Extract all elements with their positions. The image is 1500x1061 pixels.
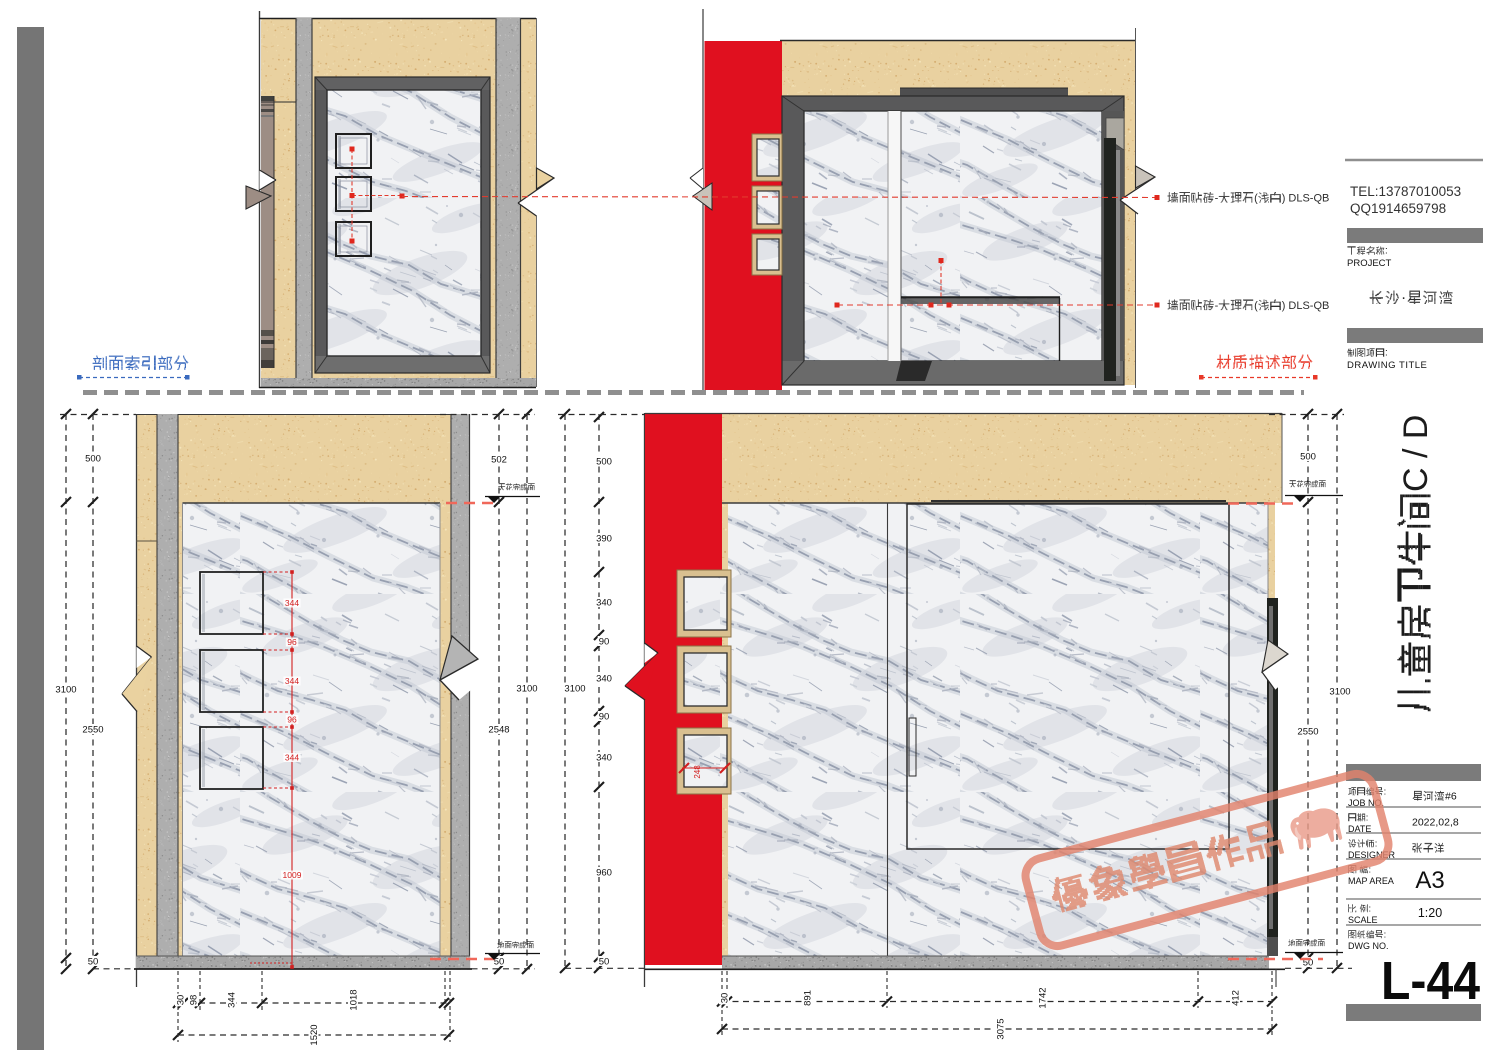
svg-text:500: 500 (1300, 452, 1316, 463)
svg-text:SCALE: SCALE (1348, 915, 1378, 925)
svg-text:248: 248 (693, 765, 702, 779)
svg-text:96: 96 (287, 637, 297, 647)
svg-text::: : (1385, 348, 1388, 359)
svg-text:340: 340 (596, 753, 612, 764)
svg-text:344: 344 (227, 992, 238, 1008)
svg-text:) DLS-QB: ) DLS-QB (1282, 300, 1330, 312)
svg-text::: : (1366, 812, 1369, 822)
svg-text:412: 412 (1231, 990, 1242, 1006)
svg-text:344: 344 (285, 676, 299, 686)
svg-text:3100: 3100 (516, 684, 537, 695)
svg-text:2548: 2548 (488, 725, 509, 736)
svg-text:3075: 3075 (996, 1018, 1007, 1039)
svg-text:502: 502 (491, 455, 507, 466)
svg-text:2022,02,8: 2022,02,8 (1412, 817, 1459, 829)
svg-text:90: 90 (599, 637, 610, 648)
svg-text:340: 340 (596, 674, 612, 685)
svg-text:L-44: L-44 (1381, 951, 1480, 1011)
svg-text:891: 891 (803, 990, 814, 1006)
svg-text:960: 960 (596, 868, 612, 879)
svg-text:DWG NO.: DWG NO. (1348, 941, 1389, 951)
svg-text:340: 340 (596, 598, 612, 609)
svg-text:344: 344 (285, 598, 299, 608)
svg-text:30: 30 (720, 993, 731, 1004)
svg-text:2550: 2550 (82, 725, 103, 736)
svg-text:1:20: 1:20 (1418, 906, 1442, 920)
svg-text:500: 500 (596, 457, 612, 468)
svg-text:PROJECT: PROJECT (1347, 258, 1392, 269)
svg-text::: : (1384, 786, 1387, 796)
svg-text:·: · (1401, 290, 1406, 307)
svg-text:1742: 1742 (1038, 987, 1049, 1008)
svg-text:#6: #6 (1445, 791, 1457, 803)
svg-text:) DLS-QB: ) DLS-QB (1282, 192, 1330, 204)
svg-text:C / D: C / D (1397, 415, 1435, 492)
svg-text:2550: 2550 (1297, 727, 1318, 738)
svg-text:(: ( (1254, 300, 1258, 312)
svg-text:90: 90 (599, 712, 610, 723)
svg-text:500: 500 (85, 454, 101, 465)
svg-text:-: - (1215, 300, 1219, 312)
svg-text:30: 30 (176, 995, 187, 1006)
svg-text:50: 50 (599, 957, 610, 968)
svg-text:1009: 1009 (283, 870, 302, 880)
svg-text:3100: 3100 (55, 685, 76, 696)
svg-text:3100: 3100 (1329, 687, 1350, 698)
svg-text:TEL:13787010053: TEL:13787010053 (1350, 184, 1461, 199)
svg-text::: : (1385, 246, 1388, 257)
svg-text:DRAWING TITLE: DRAWING TITLE (1347, 360, 1427, 371)
svg-text:(: ( (1254, 192, 1258, 204)
svg-text:QQ1914659798: QQ1914659798 (1350, 201, 1446, 216)
svg-text:1520: 1520 (309, 1024, 320, 1045)
svg-text:1018: 1018 (349, 989, 360, 1010)
svg-text:50: 50 (88, 957, 99, 968)
svg-text:390: 390 (596, 534, 612, 545)
svg-text:A3: A3 (1415, 867, 1444, 894)
svg-text:3100: 3100 (564, 684, 585, 695)
svg-text:98: 98 (189, 995, 200, 1006)
svg-text::: : (1384, 929, 1387, 939)
svg-text:344: 344 (285, 753, 299, 763)
svg-text::: : (1375, 838, 1378, 848)
svg-text:-: - (1215, 192, 1219, 204)
svg-text::: : (1369, 903, 1372, 913)
svg-text:96: 96 (287, 715, 297, 725)
svg-text:MAP AREA: MAP AREA (1348, 876, 1394, 886)
